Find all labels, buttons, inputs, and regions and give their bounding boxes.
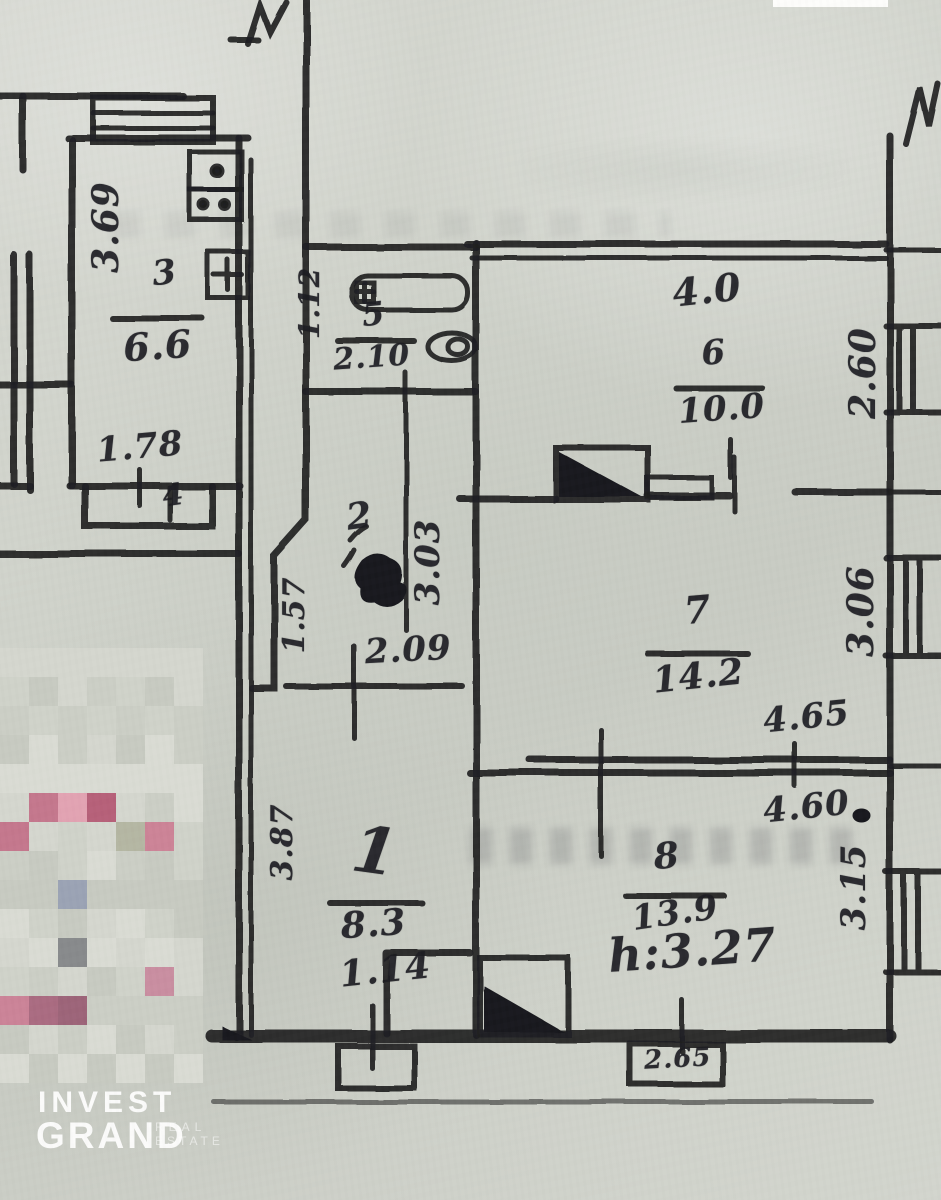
dim-right-low: 3.15 xyxy=(837,817,879,957)
stove-icon xyxy=(190,152,242,220)
floor-plan-drawing xyxy=(0,0,941,1200)
dim-hall-left: 1.57 xyxy=(279,545,317,685)
dim-bath-left: 1.12 xyxy=(295,248,331,358)
room-6-area: 10.0 xyxy=(667,388,778,439)
dim-hall-right: 3.03 xyxy=(411,492,455,632)
toilet-icon xyxy=(428,333,476,361)
room-kitchen-number: 3 xyxy=(138,254,192,301)
floor-plan-scan: 3.69 3 6.6 1.78 4 1.12 5 2.10 2 1.57 3.0… xyxy=(0,0,941,1200)
room-bath-area: 2.10 xyxy=(325,339,419,383)
vent-shaft-icon xyxy=(556,448,648,500)
dim-hall-bottom: 2.09 xyxy=(355,630,462,679)
walls xyxy=(0,0,941,1102)
threshold-box xyxy=(338,1046,414,1088)
window-symbol xyxy=(886,558,941,656)
room-7-number: 7 xyxy=(672,588,724,638)
window-symbol xyxy=(886,326,941,412)
room-8-number: 8 xyxy=(642,836,692,884)
room-6-number: 6 xyxy=(690,334,737,380)
dim-room8-bottom: 2.65 xyxy=(635,1044,721,1084)
dim-right-top: 2.60 xyxy=(845,303,891,443)
dim-kitchen-bottom: 1.78 xyxy=(86,426,195,481)
logo-sub-real: REAL xyxy=(155,1120,206,1134)
checkmark-icon xyxy=(906,84,938,144)
vent-shaft-icon xyxy=(480,958,568,1034)
room-kitchen-area: 6.6 xyxy=(106,323,209,380)
room-balcony-number: 4 xyxy=(149,477,198,523)
checkmark-icon xyxy=(231,2,286,44)
room-hall-number: 2 xyxy=(333,495,387,545)
window-symbol xyxy=(886,872,941,972)
logo-sub-estate: ESTATE xyxy=(155,1134,224,1148)
dim-living-left: 3.87 xyxy=(267,777,307,907)
room-bath-number: 5 xyxy=(350,296,398,340)
dim-kitchen-left: 3.69 xyxy=(88,147,132,307)
dim-right-mid: 3.06 xyxy=(843,541,889,681)
